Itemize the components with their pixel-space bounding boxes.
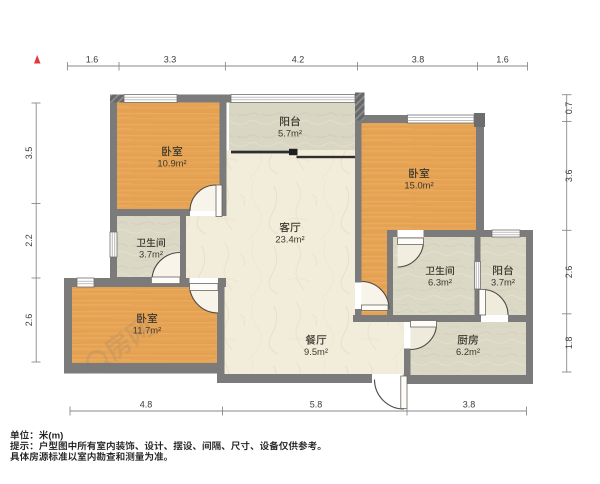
svg-text:(m): (m) — [48, 431, 63, 442]
svg-text:3.8: 3.8 — [463, 400, 476, 410]
svg-text:3.5: 3.5 — [24, 147, 34, 160]
svg-text:1.6: 1.6 — [86, 55, 99, 65]
svg-text:10.9m²: 10.9m² — [157, 158, 186, 169]
svg-text:5.7m²: 5.7m² — [278, 128, 302, 139]
svg-text:3.7m²: 3.7m² — [491, 277, 515, 288]
svg-text:3.7m²: 3.7m² — [139, 249, 163, 260]
svg-text:5.8: 5.8 — [310, 400, 323, 410]
svg-text:4.2: 4.2 — [292, 55, 305, 65]
svg-text:3.6: 3.6 — [564, 170, 574, 183]
svg-text:9.5m²: 9.5m² — [304, 346, 328, 357]
svg-text:0.7: 0.7 — [564, 102, 574, 115]
svg-text:15.0m²: 15.0m² — [404, 180, 433, 191]
svg-text:1.8: 1.8 — [564, 337, 574, 350]
svg-text:2.6: 2.6 — [24, 314, 34, 327]
svg-text:23.4m²: 23.4m² — [275, 234, 304, 245]
svg-text:3.3: 3.3 — [164, 55, 177, 65]
svg-text:2.6: 2.6 — [564, 266, 574, 279]
svg-text:2.2: 2.2 — [24, 234, 34, 247]
svg-text:6.3m²: 6.3m² — [428, 277, 452, 288]
svg-text:6.2m²: 6.2m² — [456, 346, 480, 357]
svg-text:1.6: 1.6 — [496, 55, 509, 65]
svg-text:4.8: 4.8 — [140, 400, 153, 410]
svg-text:3.8: 3.8 — [412, 55, 425, 65]
